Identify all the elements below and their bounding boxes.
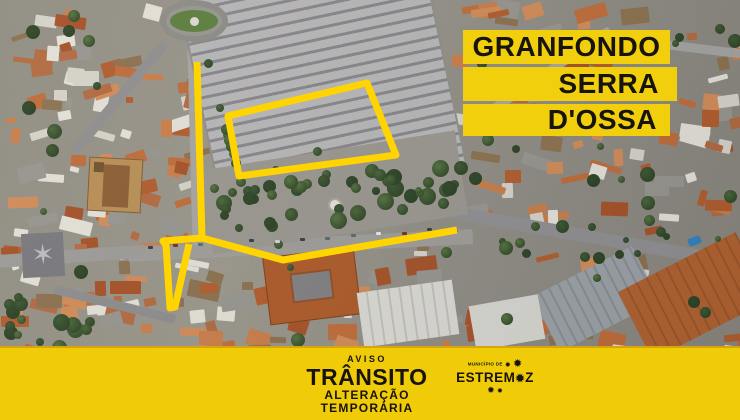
logo-small-text: MUNICÍPIO DE: [468, 361, 503, 366]
logo-name: ESTREM✹Z: [447, 370, 543, 386]
star-icon: ✹: [487, 385, 495, 395]
title-bar-1: GRANFONDO: [463, 30, 670, 64]
logo-top-row: MUNICÍPIO DE ✹ ✹: [447, 358, 543, 370]
title-bar-2: SERRA: [463, 67, 677, 101]
notice-subline-2: TEMPORÁRIA: [252, 402, 482, 415]
star-icon: ✹: [515, 373, 525, 385]
logo-name-prefix: ESTREM: [456, 370, 515, 385]
star-icon: ✹: [505, 362, 511, 369]
poster: ✶ GRANFONDO SERRA D'OSSA AVISO TRÂNSITO …: [0, 0, 740, 420]
estremoz-municipality-logo: MUNICÍPIO DE ✹ ✹ ESTREM✹Z ✹ ✹: [447, 358, 543, 396]
title-line-3: D'OSSA: [548, 104, 657, 136]
footer-band: AVISO TRÂNSITO ALTERAÇÃO TEMPORÁRIA MUNI…: [0, 346, 740, 420]
star-icon: ✹: [497, 388, 503, 395]
logo-name-suffix: Z: [525, 370, 534, 385]
title-line-2: SERRA: [558, 68, 659, 100]
title-line-1: GRANFONDO: [472, 31, 660, 63]
title-bar-3: D'OSSA: [463, 104, 670, 136]
star-icon: ✹: [513, 358, 522, 370]
logo-bottom-row: ✹ ✹: [447, 386, 543, 396]
